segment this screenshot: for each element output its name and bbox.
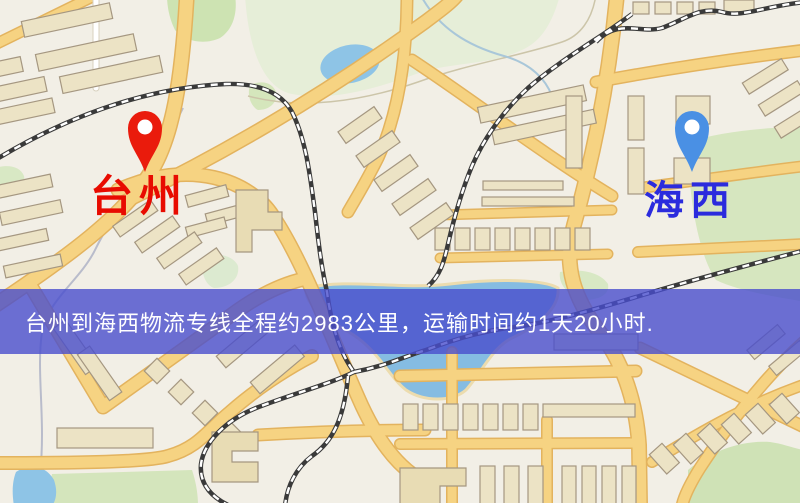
route-info-text: 台州到海西物流专线全程约2983公里，运输时间约1天20小时. <box>25 306 654 338</box>
map: 台州 海西 台州到海西物流专线全程约2983公里，运输时间约1天20小时. <box>0 0 800 503</box>
destination-label: 海西 <box>644 181 736 221</box>
map-artwork <box>0 0 800 503</box>
route-info-banner: 台州到海西物流专线全程约2983公里，运输时间约1天20小时. <box>0 289 800 354</box>
origin-label: 台州 <box>90 176 188 219</box>
